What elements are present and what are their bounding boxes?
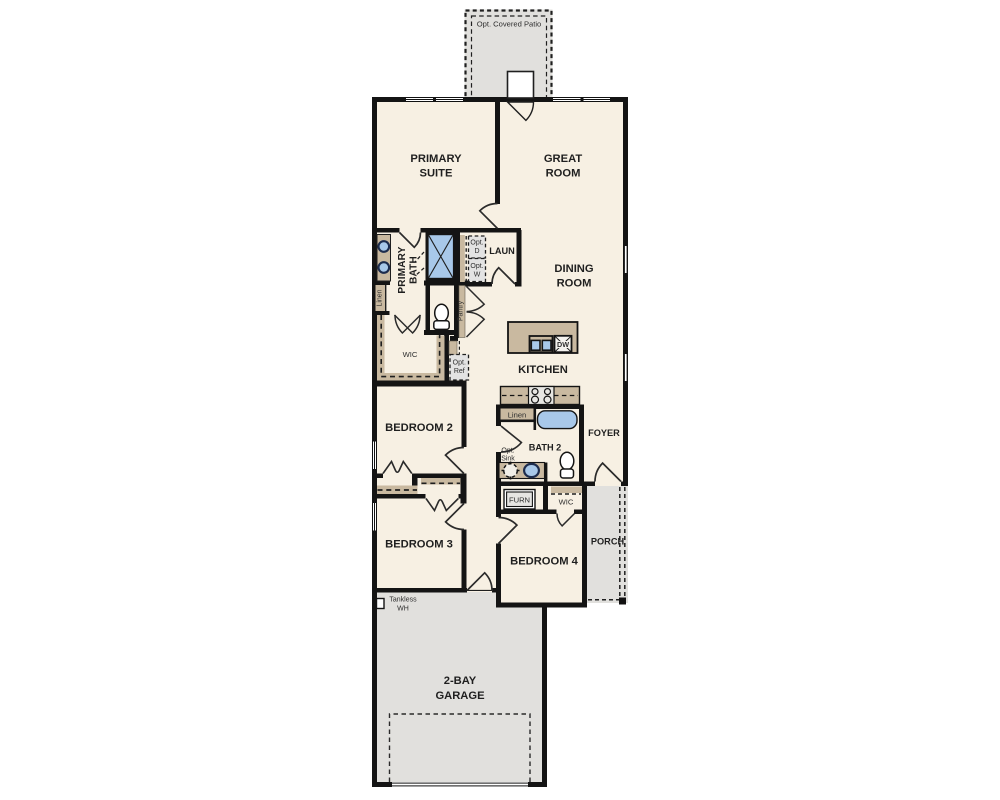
svg-text:FURN: FURN bbox=[509, 496, 530, 505]
svg-text:Linen: Linen bbox=[377, 289, 384, 306]
svg-text:GREAT: GREAT bbox=[544, 153, 582, 165]
svg-text:BEDROOM 2: BEDROOM 2 bbox=[385, 422, 453, 434]
svg-text:KITCHEN: KITCHEN bbox=[518, 364, 568, 376]
svg-text:Opt.: Opt. bbox=[501, 448, 514, 455]
svg-text:WIC: WIC bbox=[403, 350, 418, 359]
svg-text:FOYER: FOYER bbox=[588, 428, 620, 438]
svg-text:D: D bbox=[474, 248, 479, 255]
svg-text:Sink: Sink bbox=[501, 456, 515, 463]
svg-text:BEDROOM 4: BEDROOM 4 bbox=[510, 556, 579, 568]
svg-text:WH: WH bbox=[397, 606, 409, 613]
svg-text:PRIMARY: PRIMARY bbox=[397, 246, 408, 293]
svg-text:Linen: Linen bbox=[508, 411, 527, 420]
svg-text:DW: DW bbox=[557, 340, 569, 349]
svg-text:BATH: BATH bbox=[409, 256, 420, 284]
svg-text:W: W bbox=[474, 272, 481, 279]
svg-text:Ref: Ref bbox=[454, 368, 465, 375]
svg-text:BEDROOM 3: BEDROOM 3 bbox=[385, 539, 453, 551]
svg-text:ROOM: ROOM bbox=[557, 278, 592, 290]
svg-text:Tankless: Tankless bbox=[389, 597, 417, 604]
svg-text:Pantry: Pantry bbox=[458, 300, 465, 321]
svg-text:PRIMARY: PRIMARY bbox=[410, 153, 462, 165]
svg-text:Opt.: Opt. bbox=[470, 240, 483, 247]
svg-text:PORCH: PORCH bbox=[591, 537, 625, 547]
svg-text:WIC: WIC bbox=[559, 498, 574, 507]
svg-text:ROOM: ROOM bbox=[546, 168, 581, 180]
svg-text:GARAGE: GARAGE bbox=[435, 690, 485, 702]
svg-text:2-BAY: 2-BAY bbox=[444, 675, 477, 687]
svg-text:Opt.: Opt. bbox=[470, 263, 483, 270]
svg-text:BATH 2: BATH 2 bbox=[529, 443, 562, 453]
svg-text:LAUN: LAUN bbox=[489, 246, 515, 256]
svg-text:Opt.: Opt. bbox=[453, 360, 466, 367]
svg-text:DINING: DINING bbox=[554, 263, 593, 275]
svg-text:Opt. Covered Patio: Opt. Covered Patio bbox=[477, 20, 542, 29]
svg-text:SUITE: SUITE bbox=[420, 168, 453, 180]
